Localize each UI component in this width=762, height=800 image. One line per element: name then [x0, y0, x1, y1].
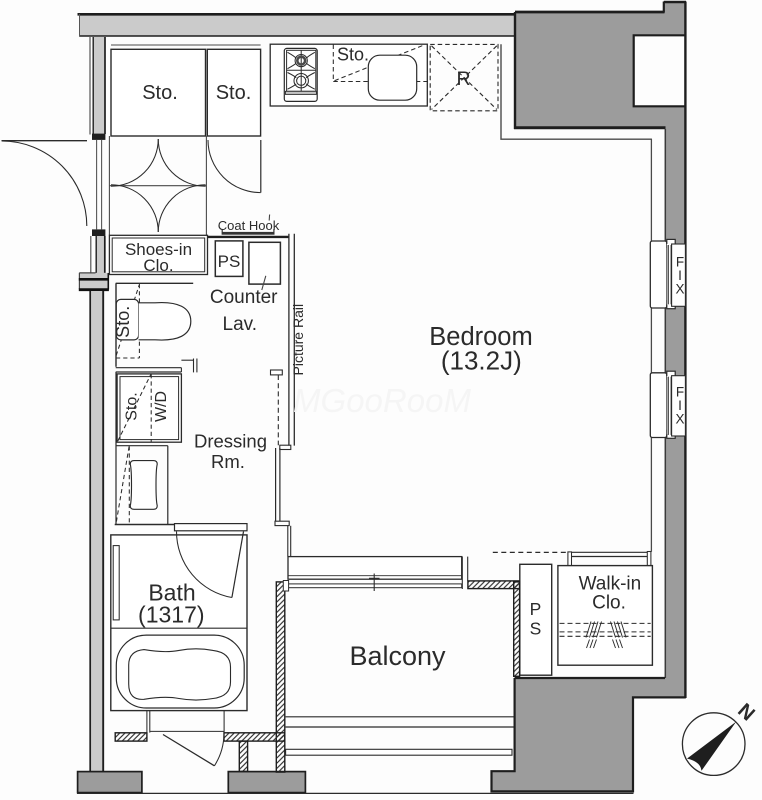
svg-text:Lav.: Lav.	[223, 314, 258, 335]
svg-text:Walk-in: Walk-in	[579, 573, 642, 594]
svg-text:Counter: Counter	[210, 287, 278, 308]
svg-text:R: R	[456, 68, 470, 90]
svg-text:Coat Hook: Coat Hook	[218, 218, 280, 233]
svg-text:MGooRooM: MGooRooM	[293, 382, 471, 419]
svg-text:X: X	[675, 282, 684, 297]
svg-text:Sto.: Sto.	[113, 306, 133, 338]
svg-text:Sto.: Sto.	[124, 392, 141, 420]
svg-text:(1317): (1317)	[138, 602, 204, 628]
svg-text:W/D: W/D	[153, 391, 170, 422]
svg-text:X: X	[675, 412, 684, 427]
svg-text:Balcony: Balcony	[349, 641, 446, 671]
svg-text:Sto.: Sto.	[142, 82, 178, 104]
svg-text:S: S	[530, 619, 542, 639]
svg-text:(13.2J): (13.2J)	[441, 346, 522, 376]
svg-text:Rm.: Rm.	[211, 451, 245, 472]
svg-text:Clo.: Clo.	[143, 256, 173, 275]
svg-text:P: P	[530, 599, 542, 619]
svg-text:Sto.: Sto.	[216, 82, 252, 104]
svg-text:PS: PS	[218, 252, 241, 271]
svg-text:Clo.: Clo.	[592, 593, 626, 614]
svg-text:Dressing: Dressing	[194, 431, 267, 452]
svg-text:Picture Rail: Picture Rail	[290, 304, 306, 376]
svg-text:Sto.: Sto.	[337, 44, 369, 64]
